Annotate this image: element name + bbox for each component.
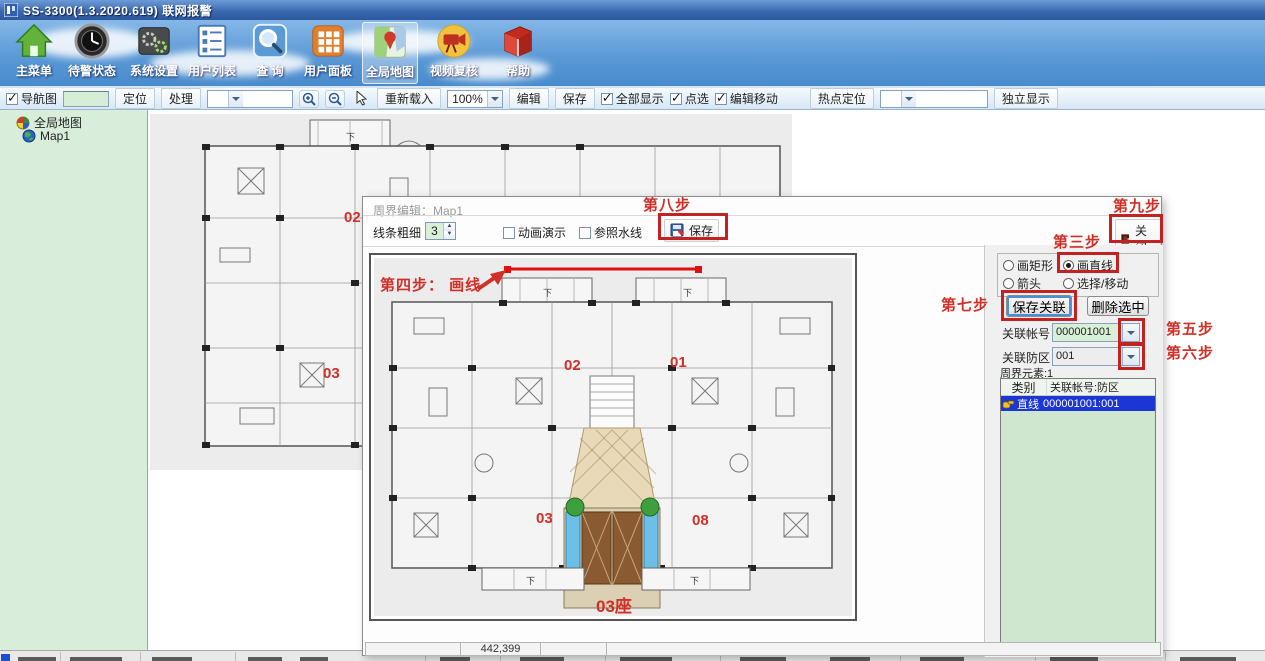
assoc-account-value: 000001001 xyxy=(1053,324,1122,341)
toolbar-label: 全局地图 xyxy=(366,63,414,80)
checkbox-checked-icon xyxy=(715,93,727,105)
svg-text:下: 下 xyxy=(543,288,552,298)
line-width-label: 线条粗细 xyxy=(373,224,421,241)
svg-text:02: 02 xyxy=(564,357,581,374)
video-camera-icon xyxy=(435,22,473,60)
radio-arrow[interactable]: 箭头 xyxy=(1003,275,1041,292)
clock-icon xyxy=(73,22,111,60)
perimeter-elements-list[interactable]: 类别 关联帐号:防区 直线 000001001:001 xyxy=(1000,378,1156,643)
nav-search-input[interactable] xyxy=(63,91,109,107)
assoc-zone-value: 001 xyxy=(1053,348,1122,365)
toolbar-help[interactable]: 帮助 xyxy=(490,22,546,84)
toolbar-video-review[interactable]: 视频复核 xyxy=(426,22,482,84)
svg-text:下: 下 xyxy=(690,576,699,586)
perimeter-edit-dialog: 周界编辑：Map1 线条粗细 3 ▲▼ 动画演示 参照水线 保存 第八步 xyxy=(362,196,1162,656)
pointer-tool-button[interactable] xyxy=(351,90,371,108)
delete-selected-button[interactable]: 删除选中 xyxy=(1087,296,1149,316)
toolbar-label: 视频复核 xyxy=(430,62,478,79)
home-icon xyxy=(15,22,53,60)
step6-label: 第六步 xyxy=(1166,346,1214,361)
chevron-down-icon[interactable] xyxy=(1122,348,1139,365)
save-disk-icon xyxy=(670,223,685,238)
standalone-display-button[interactable]: 独立显示 xyxy=(994,88,1058,109)
radio-off-icon xyxy=(1003,278,1014,289)
line-width-value: 3 xyxy=(426,223,443,239)
checkbox-checked-icon xyxy=(6,93,18,105)
toolbar-global-map[interactable]: 全局地图 xyxy=(362,22,418,84)
svg-text:03: 03 xyxy=(323,365,340,382)
step3-label: 第三步 xyxy=(1053,235,1101,250)
toolbar-label: 帮助 xyxy=(506,62,530,79)
toolbar-user-list[interactable]: 用户列表 xyxy=(184,22,240,84)
step7-label: 第七步 xyxy=(941,298,989,313)
list-cell-assoc: 000001001:001 xyxy=(1043,398,1119,410)
list-item-line[interactable]: 直线 000001001:001 xyxy=(1001,396,1155,411)
chevron-down-icon xyxy=(901,91,916,107)
radio-off-icon xyxy=(1003,260,1014,271)
map-pin-icon xyxy=(371,23,409,61)
svg-text:03座: 03座 xyxy=(596,596,632,616)
list-cell-type: 直线 xyxy=(1015,396,1043,412)
hotspot-locate-button[interactable]: 热点定位 xyxy=(810,88,874,109)
toolbar-main-menu[interactable]: 主菜单 xyxy=(6,22,62,84)
radio-off-icon xyxy=(1063,278,1074,289)
checkbox-unchecked-icon xyxy=(503,227,515,239)
zoom-out-icon xyxy=(328,92,342,106)
step8-label: 第八步 xyxy=(643,198,691,213)
edit-move-checkbox[interactable]: 编辑移动 xyxy=(715,90,778,107)
list-header-type: 类别 xyxy=(1001,379,1047,396)
titlebar: SS-3300(1.3.2020.619) 联网报警 xyxy=(0,0,1265,20)
global-map-icon xyxy=(16,116,30,130)
toolbar-system-settings[interactable]: 系统设置 xyxy=(126,22,182,84)
map-toolbar: 导航图 定位 处理 重新载入 xyxy=(0,88,1265,110)
hotspot-dropdown[interactable] xyxy=(880,90,988,108)
spinner-up-icon[interactable]: ▲ xyxy=(444,223,455,231)
list-header: 类别 关联帐号:防区 xyxy=(1001,379,1155,396)
chevron-down-icon[interactable] xyxy=(1122,324,1139,341)
show-all-checkbox[interactable]: 全部显示 xyxy=(601,90,664,107)
radio-select-move[interactable]: 选择/移动 xyxy=(1063,275,1128,292)
dialog-statusbar: 442,399 xyxy=(365,642,1161,656)
cursor-arrow-icon xyxy=(355,91,368,106)
svg-text:下: 下 xyxy=(526,576,535,586)
toolbar-label: 待警状态 xyxy=(68,62,116,79)
exit-door-icon xyxy=(1121,233,1131,245)
reload-button[interactable]: 重新载入 xyxy=(377,88,441,109)
step9-label: 第九步 xyxy=(1113,199,1161,214)
gear-icon xyxy=(135,22,173,60)
toolbar-standby-status[interactable]: 待警状态 xyxy=(64,22,120,84)
main-toolbar: 主菜单 待警状态 系统设置 xyxy=(0,20,1265,88)
zoom-out-button[interactable] xyxy=(325,90,345,108)
toolbar-search[interactable]: 查 询 xyxy=(242,22,298,84)
point-select-checkbox[interactable]: 点选 xyxy=(670,90,709,107)
svg-text:下: 下 xyxy=(683,288,692,298)
window-title: SS-3300(1.3.2020.619) 联网报警 xyxy=(23,2,212,19)
list-icon xyxy=(193,22,231,60)
step5-label: 第五步 xyxy=(1166,322,1214,337)
locate-button[interactable]: 定位 xyxy=(115,88,155,109)
radio-on-icon xyxy=(1063,260,1074,271)
checkbox-unchecked-icon xyxy=(579,227,591,239)
globe-icon xyxy=(22,129,36,143)
radio-draw-rectangle[interactable]: 画矩形 xyxy=(1003,257,1053,274)
svg-text:03: 03 xyxy=(536,510,553,527)
svg-text:02: 02 xyxy=(344,209,361,226)
save-association-button[interactable]: 保存关联 xyxy=(1006,295,1072,317)
dialog-title: 周界编辑：Map1 xyxy=(373,202,463,219)
toolbar-label: 主菜单 xyxy=(16,62,52,79)
zoom-in-button[interactable] xyxy=(299,90,319,108)
map-tree-panel: 全局地图 Map1 xyxy=(0,110,148,650)
help-book-icon xyxy=(499,22,537,60)
app-icon xyxy=(4,3,18,17)
assoc-account-dropdown[interactable]: 000001001 xyxy=(1052,323,1140,342)
line-width-spinner[interactable]: 3 ▲▼ xyxy=(425,222,456,240)
zoom-level-dropdown[interactable]: 100% xyxy=(447,90,503,108)
tree-item-map1[interactable]: Map1 xyxy=(22,129,70,143)
chevron-down-icon xyxy=(228,91,243,107)
toolbar-label: 查 询 xyxy=(256,62,283,79)
svg-text:01: 01 xyxy=(670,354,687,371)
toolbar-label: 用户面板 xyxy=(304,62,352,79)
svg-text:第四步： 画线: 第四步： 画线 xyxy=(380,276,481,294)
spinner-down-icon[interactable]: ▼ xyxy=(444,231,455,239)
pointing-hand-icon xyxy=(1002,398,1015,410)
status-indicator-icon xyxy=(1,654,10,661)
svg-text:下: 下 xyxy=(346,132,355,142)
toolbar-label: 系统设置 xyxy=(130,62,178,79)
map-select-dropdown[interactable] xyxy=(207,90,293,108)
list-header-assoc: 关联帐号:防区 xyxy=(1047,379,1119,395)
chevron-down-icon xyxy=(487,91,502,107)
cursor-coordinates: 442,399 xyxy=(460,642,540,656)
floorplan-edit-area[interactable]: SouFun 下 下 xyxy=(369,253,857,621)
toolbar-user-panel[interactable]: 用户面板 xyxy=(300,22,356,84)
edit-button[interactable]: 编辑 xyxy=(509,88,549,109)
handle-button[interactable]: 处理 xyxy=(161,88,201,109)
zoom-in-icon xyxy=(302,92,316,106)
checkbox-checked-icon xyxy=(601,93,613,105)
save-button[interactable]: 保存 xyxy=(555,88,595,109)
radio-draw-line[interactable]: 画直线 xyxy=(1063,257,1113,274)
assoc-zone-label: 关联防区 xyxy=(1002,349,1050,366)
dialog-save-button[interactable]: 保存 xyxy=(664,219,719,242)
dialog-floorplan: SouFun 下 下 xyxy=(374,258,852,616)
svg-text:08: 08 xyxy=(692,512,709,529)
toolbar-label: 用户列表 xyxy=(188,62,236,79)
search-icon xyxy=(251,22,289,60)
assoc-zone-dropdown[interactable]: 001 xyxy=(1052,347,1140,366)
drawing-tools-panel: 画矩形 画直线 箭头 选择/移动 保存关联 删除选中 关联帐号 00000100… xyxy=(984,245,1163,657)
app-window: SS-3300(1.3.2020.619) 联网报警 主菜单 待警状态 xyxy=(0,0,1265,661)
assoc-account-label: 关联帐号 xyxy=(1002,325,1050,342)
reference-waterline-checkbox[interactable]: 参照水线 xyxy=(579,224,642,241)
checkbox-checked-icon xyxy=(670,93,682,105)
animation-demo-checkbox[interactable]: 动画演示 xyxy=(503,224,566,241)
nav-map-checkbox[interactable]: 导航图 xyxy=(6,90,57,107)
grid-panel-icon xyxy=(309,22,347,60)
